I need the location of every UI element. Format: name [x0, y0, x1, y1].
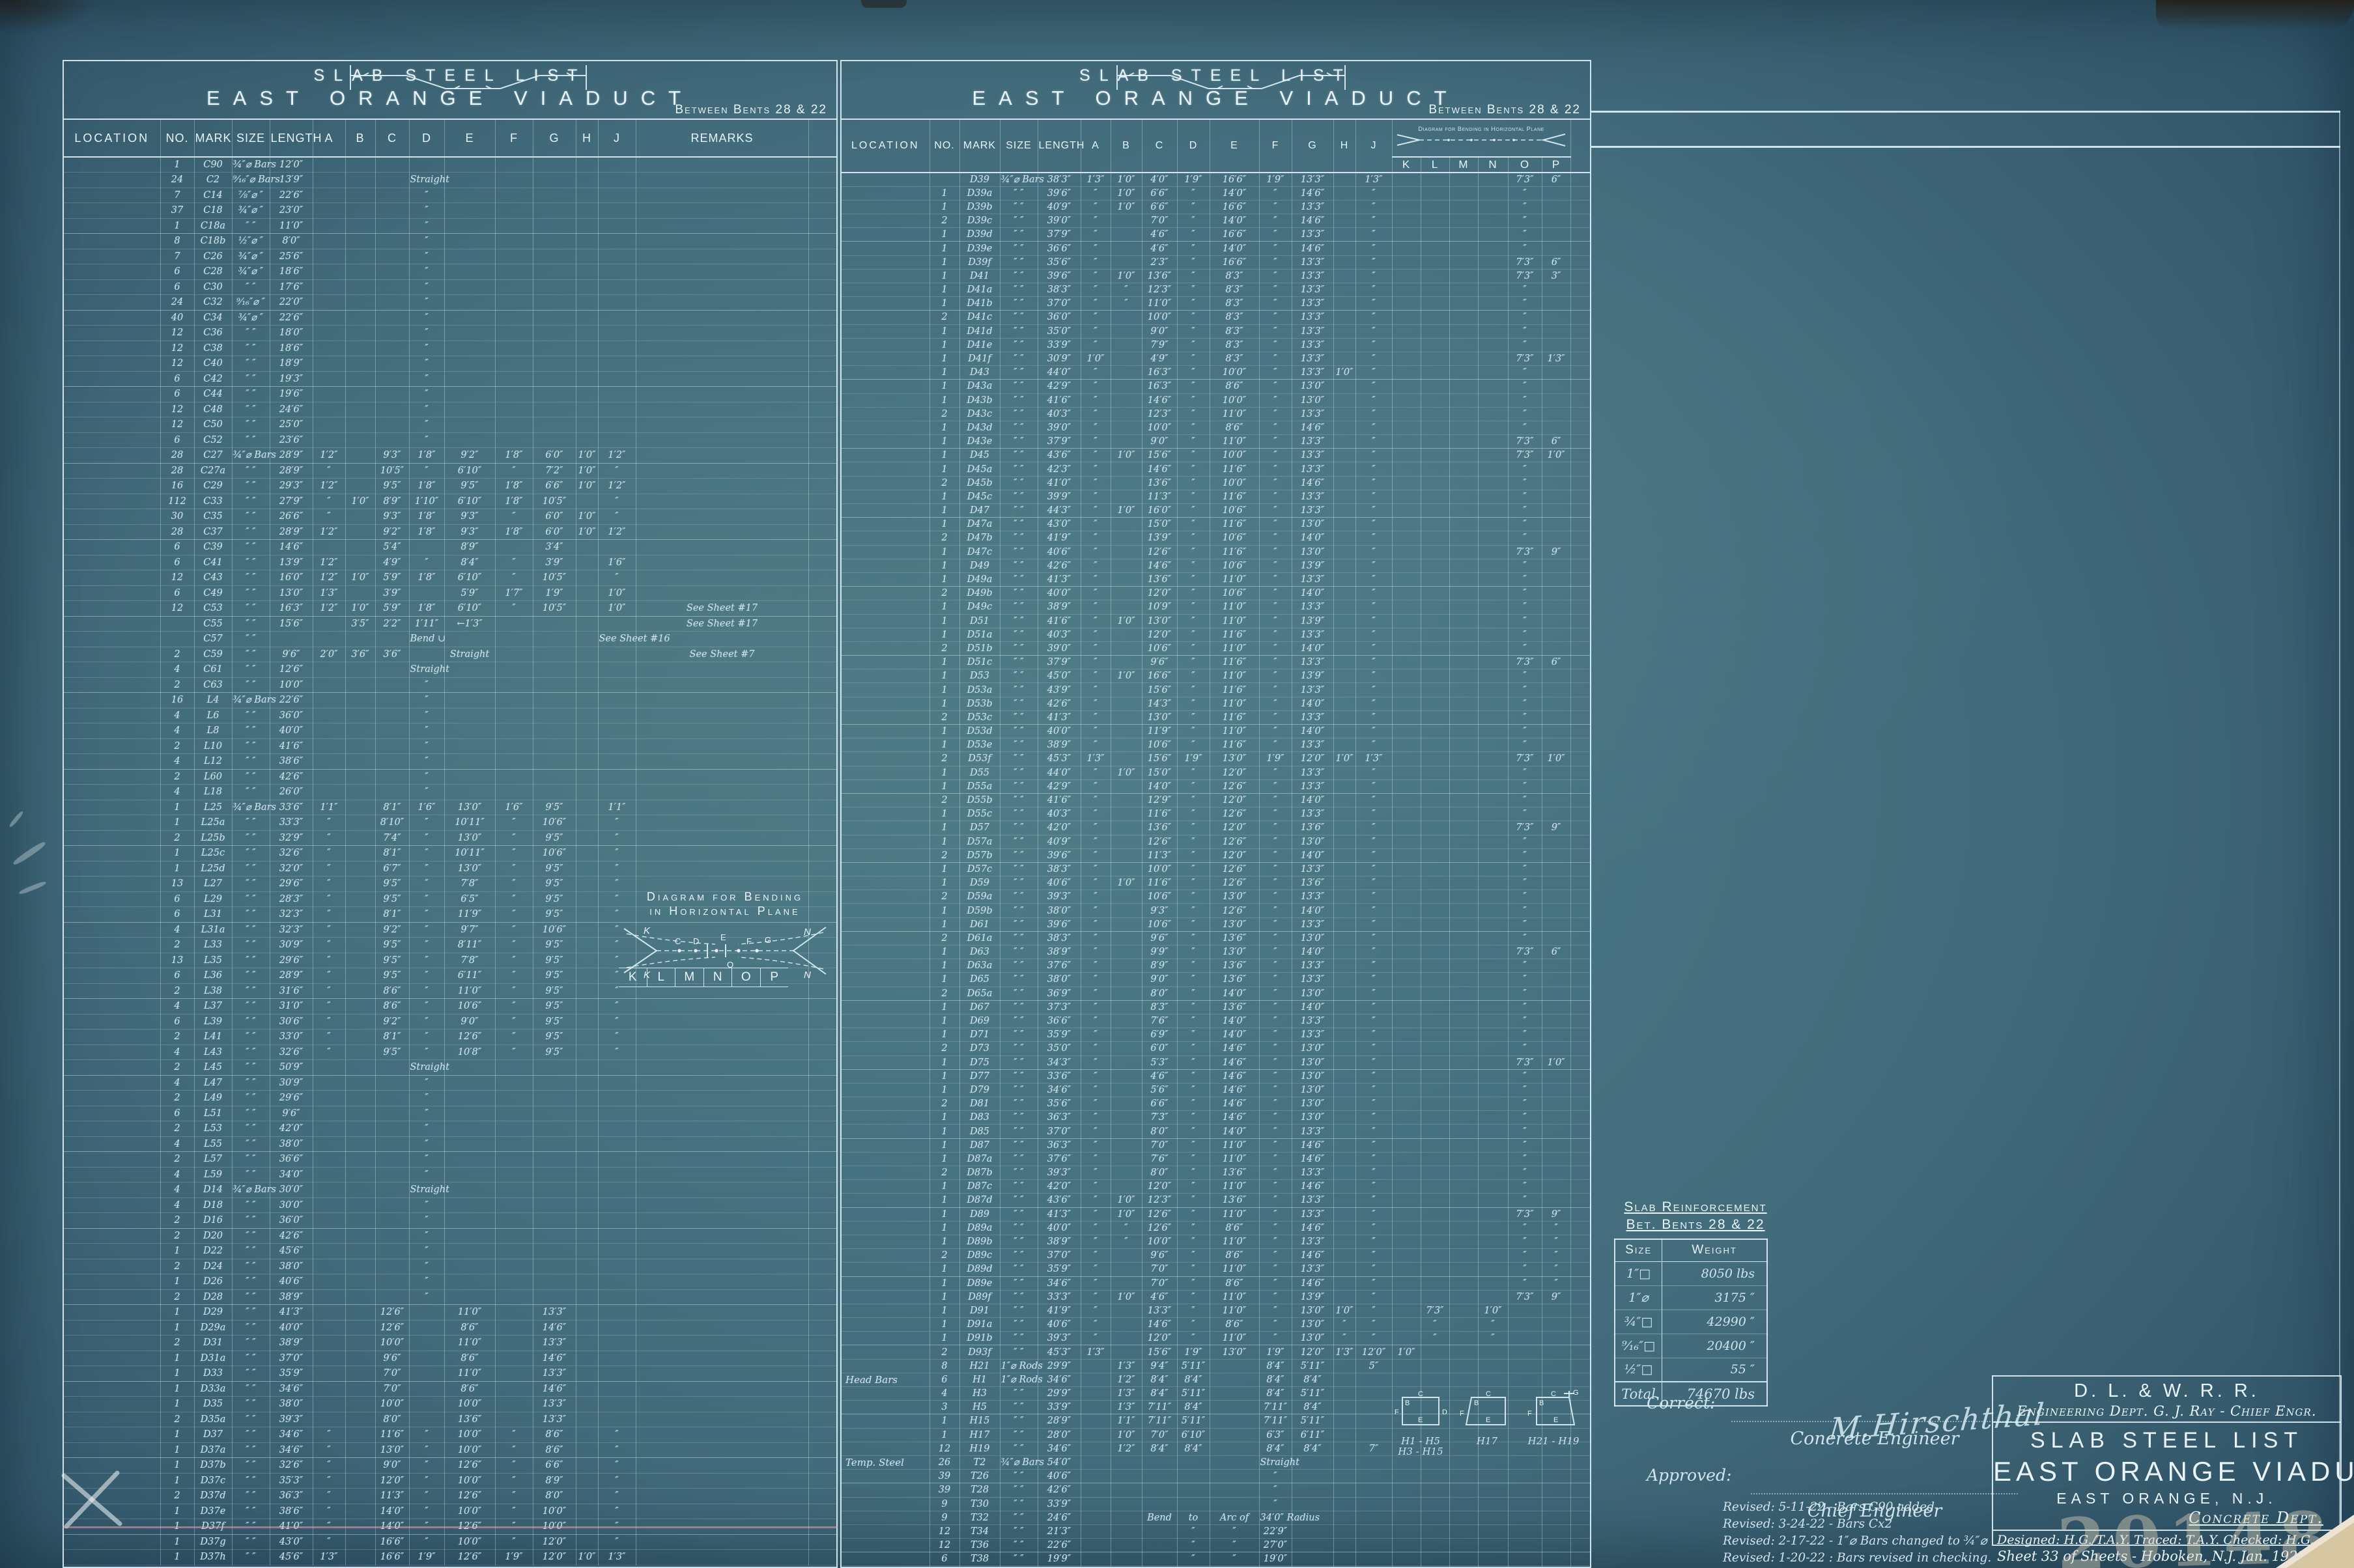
col-k: K: [1392, 157, 1421, 173]
table-row: 12C48″ ″24′6″″: [64, 402, 836, 417]
table-row: 2D45b″ ″41′0″″13′6″″10′0″″14′6″″″: [842, 476, 1590, 490]
col-remarks: REMARKS: [636, 119, 808, 157]
col-location: LOCATION: [842, 119, 929, 173]
blueprint-sheet: SLAB STEEL LIST EAST ORANGE VIADUCT Betw…: [0, 0, 2354, 1568]
col-mark: MARK: [194, 119, 232, 157]
table-row: 39T26″ ″40′6″″: [842, 1470, 1590, 1483]
table-row: 1D22″ ″45′6″″: [64, 1244, 836, 1259]
table-row: 1D29a″ ″40′0″12′6″8′6″14′6″: [64, 1320, 836, 1336]
table-row: 1C18a″ ″11′0″″: [64, 218, 836, 234]
table-row: 12C40″ ″18′9″″: [64, 356, 836, 372]
reinforcement-table: Size Weight 1″□8050 lbs1″⌀3175 ″¾″□42990…: [1614, 1239, 1768, 1407]
svg-text:E: E: [1486, 1416, 1490, 1424]
table-row: 12C43″ ″16′0″1′2″1′0″5′9″1′8″6′10″″10′5″…: [64, 570, 836, 586]
table-row: 12C38″ ″18′6″″: [64, 341, 836, 356]
signature-line: M.Hirschthal: [1731, 1421, 2011, 1422]
svg-text:G: G: [1573, 1390, 1579, 1397]
left-steel-list-panel: SLAB STEEL LIST EAST ORANGE VIADUCT Betw…: [63, 60, 838, 1568]
table-row: Head Bars6H11″⌀ Rods34′6″1′2″8′4″8′4″8′4…: [842, 1373, 1590, 1386]
table-row: C55″ ″15′6″3′5″2′2″1′11″←1′3″See Sheet #…: [64, 616, 836, 632]
svg-text:C: C: [1551, 1390, 1556, 1398]
table-row: 1D79″ ″34′6″″5′6″″14′6″″13′0″″″: [842, 1083, 1590, 1097]
col-j: J: [598, 119, 636, 157]
table-row: 4L6″ ″36′0″″: [64, 708, 836, 723]
shape-h1-h5: C B F E D H1 - H5 H3 - H15: [1392, 1390, 1449, 1457]
sheet-right-border: [2339, 111, 2340, 1560]
top-right-stain: [2156, 0, 2354, 30]
table-row: 4C61″ ″12′6″Straight: [64, 662, 836, 678]
table-header: LOCATION NO. MARK SIZE LENGTH A B C D E …: [842, 119, 1590, 173]
table-row: 2L10″ ″41′6″″: [64, 738, 836, 754]
table-row: 2D43c″ ″40′3″″12′3″″11′0″″13′3″″″: [842, 407, 1590, 421]
col-d: D: [409, 119, 444, 157]
table-row: 24C2⁹⁄₁₆″⌀ Bars13′9″Straight: [64, 173, 836, 188]
table-row: 2D87b″ ″39′3″″8′0″″13′6″″13′3″″″: [842, 1166, 1590, 1180]
table-row: 112C33″ ″27′9″″1′0″8′9″1′10″6′10″1′8″10′…: [64, 494, 836, 509]
table-row: 2C59″ ″9′6″2′0″3′6″3′6″StraightSee Sheet…: [64, 647, 836, 662]
table-row: 1D83″ ″36′3″″7′3″″14′6″″13′0″″″: [842, 1111, 1590, 1125]
steel-list-table-middle: LOCATION NO. MARK SIZE LENGTH A B C D E …: [842, 119, 1591, 1568]
svg-text:E: E: [1418, 1416, 1423, 1424]
table-row: 2L41″ ″33′0″″8′1″″12′6″″9′5″″: [64, 1029, 836, 1045]
table-row: 1D53″ ″45′0″″1′0″16′6″″11′0″″13′9″″″: [842, 669, 1590, 683]
table-row: 2D73″ ″35′0″″6′0″″14′6″″13′0″″″: [842, 1042, 1590, 1056]
table-row: 1D47″ ″44′3″″1′0″16′0″″10′6″″13′3″″″: [842, 504, 1590, 518]
table-row: ½″□55 ″: [1615, 1358, 1767, 1382]
top-left-stain: [0, 0, 98, 34]
table-row: 6C28¾″⌀ ″18′6″″: [64, 264, 836, 280]
table-row: 1C90¾″⌀ Bars12′0″: [64, 157, 836, 173]
table-header: LOCATION NO. MARK SIZE LENGTH A B C D E …: [64, 119, 836, 157]
table-row: 2D53c″ ″41′3″″13′0″″11′6″″13′3″″″: [842, 710, 1590, 724]
table-row: 1D75″ ″34′3″″5′3″″14′6″″13′0″″7′3″1′0″: [842, 1056, 1590, 1069]
table-row: 1L25d″ ″32′0″″6′7″″13′0″″9′5″″: [64, 861, 836, 876]
table-row: 40C34¾″⌀ ″22′6″″: [64, 310, 836, 326]
table-row: 1D37b″ ″32′6″″9′0″″12′6″″6′6″″: [64, 1458, 836, 1474]
svg-text:B: B: [1474, 1399, 1479, 1407]
middle-panel-title: SLAB STEEL LIST EAST ORANGE VIADUCT Betw…: [842, 61, 1590, 119]
table-row: 8C18b½″⌀ ″8′0″″: [64, 234, 836, 249]
table-row: 6C39″ ″14′6″5′4″8′9″3′4″: [64, 540, 836, 555]
table-row: 12T36″ ″22′6″″″27′0″: [842, 1539, 1590, 1552]
table-row: 1D71″ ″35′9″″6′9″″14′0″″13′3″″″: [842, 1028, 1590, 1042]
table-row: 1D39b″ ″40′9″″1′0″6′6″″16′6″″13′3″″″: [842, 200, 1590, 214]
table-row: 4L47″ ″30′9″″: [64, 1075, 836, 1091]
table-row: 9T30″ ″33′9″″: [842, 1497, 1590, 1511]
table-row: 2L53″ ″42′0″″: [64, 1121, 836, 1137]
table-row: 1D87d″ ″43′6″″1′0″12′3″″13′6″″13′3″″″: [842, 1194, 1590, 1207]
table-row: 2D35a″ ″39′3″8′0″13′6″13′3″: [64, 1412, 836, 1427]
table-row: 1D37c″ ″35′3″″12′0″″10′0″″8′9″″: [64, 1473, 836, 1489]
table-row: 1D91″ ″41′9″″13′3″″11′0″″13′0″1′0″″7′3″1…: [842, 1304, 1590, 1317]
col-weight: Weight: [1662, 1239, 1767, 1261]
col-size: Size: [1615, 1239, 1662, 1261]
col-c: C: [375, 119, 409, 157]
table-row: 6C49″ ″13′0″1′3″3′9″5′9″1′7″1′9″1′0″: [64, 585, 836, 601]
svg-text:E: E: [720, 932, 726, 942]
table-row: 1D55″ ″44′0″″1′0″15′0″″12′0″″13′3″″″: [842, 766, 1590, 779]
col-a: A: [313, 119, 345, 157]
col-f: F: [1259, 119, 1292, 173]
table-row: 1D89e″ ″34′6″″7′0″″8′6″″14′6″″″″: [842, 1276, 1590, 1290]
table-row: 6C52″ ″23′6″″: [64, 432, 836, 448]
col-e: E: [1210, 119, 1259, 173]
table-row: 1D43e″ ″37′9″″9′0″″11′0″″13′3″″7′3″6″: [842, 435, 1590, 449]
table-row: 2C63″ ″10′0″″: [64, 677, 836, 693]
table-row: 2D49b″ ″40′0″″12′0″″10′6″″14′0″″″: [842, 587, 1590, 600]
table-row: 1D31a″ ″37′0″9′6″8′6″14′6″: [64, 1351, 836, 1366]
page-title: SLAB STEEL LIST: [64, 61, 836, 85]
table-row: 7C14⅞″⌀ ″22′6″″: [64, 188, 836, 203]
edge-scuff: [12, 841, 46, 867]
table-row: 1D51a″ ″40′3″″12′0″″11′6″″13′3″″″: [842, 628, 1590, 641]
col-spare: [808, 119, 836, 157]
table-row: 1D33″ ″35′9″7′0″11′0″13′3″: [64, 1366, 836, 1382]
table-row: 2D59a″ ″39′3″″10′6″″13′0″″13′3″″″: [842, 890, 1590, 904]
table-row: 12C36″ ″18′0″″: [64, 326, 836, 341]
table-row: 1D47c″ ″40′6″″12′6″″11′6″″13′0″″7′3″9″: [842, 545, 1590, 559]
table-row: ¾″□42990 ″: [1615, 1309, 1767, 1334]
steel-list-table-left: LOCATION NO. MARK SIZE LENGTH A B C D E …: [64, 119, 837, 1565]
table-row: D39¾″⌀ Bars38′3″1′3″1′0″4′0″1′9″16′6″1′9…: [842, 173, 1590, 186]
table-row: 1D49″ ″42′6″″14′6″″10′6″″13′9″″″: [842, 559, 1590, 572]
table-row: 1D41f″ ″30′9″1′0″4′9″″8′3″″13′3″″7′3″1′3…: [842, 352, 1590, 365]
table-row: 1D41b″ ″37′0″″″11′0″″8′3″″13′3″″″: [842, 297, 1590, 311]
table-row: 2D47b″ ″41′9″″13′9″″10′6″″14′0″″″: [842, 531, 1590, 545]
table-row: 4L12″ ″38′6″″: [64, 754, 836, 770]
table-row: 6C42″ ″19′3″″: [64, 371, 836, 387]
approved-signature-row: Approved:: [1647, 1466, 2024, 1500]
col-h: H: [1333, 119, 1355, 173]
table-row: 2D81″ ″35′6″″6′6″″14′6″″13′0″″″: [842, 1097, 1590, 1111]
table-row: 1D51c″ ″37′9″″9′6″″11′6″″13′3″″7′3″6″: [842, 656, 1590, 669]
col-size: SIZE: [1000, 119, 1038, 173]
revision-line: Revised: 1-20-22 : Bars revised in check…: [1723, 1550, 1991, 1567]
svg-text:C: C: [1418, 1390, 1423, 1398]
table-row: 1D53b″ ″42′6″″14′3″″11′0″″14′0″″″: [842, 697, 1590, 710]
table-row: 16C29″ ″29′3″1′2″9′5″1′8″9′5″1′8″6′6″1′0…: [64, 479, 836, 494]
table-row: 2D37d″ ″36′3″″11′3″″12′6″″8′0″″: [64, 1489, 836, 1504]
col-g: G: [1292, 119, 1333, 173]
svg-text:D: D: [693, 936, 699, 946]
table-row: 1D35″ ″38′0″10′0″10′0″13′3″: [64, 1397, 836, 1412]
table-row: 1D39d″ ″37′9″″4′6″″16′6″″13′3″″″: [842, 228, 1590, 242]
table-row: 1D63″ ″38′9″″9′9″″13′0″″14′0″″7′3″6″: [842, 945, 1590, 959]
svg-text:F: F: [1527, 1410, 1532, 1418]
col-j: J: [1355, 119, 1392, 173]
table-row: 4D14¾″⌀ Bars30′0″Straight: [64, 1183, 836, 1198]
table-row: 1D59b″ ″38′0″″9′3″″12′6″″14′0″″″: [842, 904, 1590, 917]
col-length: LENGTH: [270, 119, 313, 157]
table-row: 2D39c″ ″39′0″″7′0″″14′0″″14′6″″″: [842, 214, 1590, 228]
svg-text:F: F: [1395, 1408, 1399, 1416]
table-row: 1D49a″ ″41′3″″13′6″″11′0″″13′3″″″: [842, 572, 1590, 586]
table-row: 1D47a″ ″43′0″″15′0″″11′6″″13′0″″″: [842, 518, 1590, 531]
col-mark: MARK: [959, 119, 1000, 173]
table-row: 9T32″ ″24′6″BendtoArc of34′0″ Radius: [842, 1511, 1590, 1524]
table-row: 1D53a″ ″43′9″″15′6″″11′6″″13′3″″″: [842, 683, 1590, 697]
table-row: 1D89a″ ″40′0″″″12′6″″8′6″″14′6″″″″: [842, 1221, 1590, 1235]
table-row: 1D57″ ″42′0″″13′6″″12′0″″13′6″″7′3″9″: [842, 821, 1590, 835]
page-title: SLAB STEEL LIST: [842, 61, 1590, 85]
svg-text:C: C: [1486, 1390, 1491, 1398]
table-row: 6L39″ ″30′6″″9′2″″9′0″″9′5″″: [64, 1014, 836, 1029]
table-row: 2D31″ ″38′9″10′0″11′0″13′3″: [64, 1336, 836, 1351]
table-row: 1D55a″ ″42′9″″14′0″″12′6″″13′3″″″: [842, 779, 1590, 793]
slab-reinforcement-summary: Slab Reinforcement Bet. Bents 28 & 22 Si…: [1614, 1198, 1777, 1407]
table-row: 1D29″ ″41′3″12′6″11′0″13′3″: [64, 1305, 836, 1321]
svg-text:N: N: [804, 970, 811, 981]
svg-text:F: F: [746, 936, 752, 946]
col-o: O: [1508, 157, 1542, 173]
table-row: 1D57a″ ″40′9″″12′6″″12′6″″13′0″″″: [842, 835, 1590, 848]
table-row: ⁹⁄₁₆″□20400 ″: [1615, 1334, 1767, 1358]
table-row: 2D41c″ ″36′0″″10′0″″8′3″″13′3″″″: [842, 311, 1590, 324]
svg-text:C: C: [675, 936, 681, 946]
engineering-dept-line: Engineering Dept. G. J. Ray - Chief Engr…: [1993, 1402, 2340, 1423]
mini-bending-sketch: [1393, 133, 1569, 147]
table-row: 2L25b″ ″32′9″″7′4″″13′0″″9′5″″: [64, 830, 836, 846]
table-row: 37C18¾″⌀ ″23′0″″: [64, 203, 836, 219]
table-row: 1D55c″ ″40′3″″11′6″″12′6″″13′3″″″: [842, 807, 1590, 821]
table-row: 1D43b″ ″41′6″″14′6″″10′0″″13′0″″″: [842, 393, 1590, 407]
table-row: 1D43d″ ″39′0″″10′0″″8′6″″14′6″″″: [842, 421, 1590, 434]
table-row: 1D39f″ ″35′6″″2′3″″16′6″″13′3″″7′3″6″: [842, 255, 1590, 269]
table-row: 1D69″ ″36′6″″7′6″″14′0″″13′3″″″: [842, 1014, 1590, 1028]
table-row: 2D89c″ ″37′0″″9′6″″8′6″″14′6″″″″: [842, 1249, 1590, 1263]
table-row: 1D87a″ ″37′6″″7′6″″11′0″″14′6″″″: [842, 1152, 1590, 1166]
table-row: 2D20″ ″42′6″″: [64, 1228, 836, 1244]
revision-line: Revised: 5-11-22 - Bars C90 added: [1723, 1499, 1991, 1516]
col-c: C: [1142, 119, 1177, 173]
col-a: A: [1081, 119, 1111, 173]
table-row: 1L25¾″⌀ Bars33′6″1′1″8′1″1′6″13′0″1′6″9′…: [64, 800, 836, 815]
table-row: 1D51″ ″41′6″″1′0″13′0″″11′0″″13′9″″″: [842, 614, 1590, 628]
col-n: N: [1478, 157, 1508, 173]
table-row: Temp. Steel26T2¾″⌀ Bars54′0″Straight: [842, 1455, 1590, 1469]
table-row: 1″⌀3175 ″: [1615, 1285, 1767, 1309]
table-row: 8H211″⌀ Rods29′9″1′3″9′4″5′11″8′4″5′11″5…: [842, 1359, 1590, 1373]
table-row: 16L4¾″⌀ Bars22′6″″: [64, 693, 836, 708]
top-rule-1: [1591, 111, 2340, 113]
shape-h21-h19: C B F E G H21 - H19: [1525, 1390, 1582, 1457]
table-row: 4L55″ ″38′0″″: [64, 1136, 836, 1152]
table-row: 1D39a″ ″39′6″″1′0″6′6″″14′0″″14′6″″″: [842, 186, 1590, 200]
head-bar-shape-diagrams: C B F E D H1 - H5 H3 - H15 C B F E H17: [1392, 1390, 1587, 1457]
revision-line: Revised: 3-24-22 - Bars Cx2: [1723, 1516, 1991, 1533]
table-row: 1D41″ ″39′6″″1′0″13′6″″8′3″″13′3″″7′3″3″: [842, 269, 1590, 283]
table-row: 1D89b″ ″38′9″″″10′0″″11′0″″13′3″″″″: [842, 1235, 1590, 1248]
col-d: D: [1177, 119, 1210, 173]
table-row: 1D53d″ ″40′0″″11′9″″11′0″″14′0″″″: [842, 725, 1590, 738]
table-row: 2D16″ ″36′0″″: [64, 1213, 836, 1229]
table-row: 1D39e″ ″36′6″″4′6″″14′0″″14′6″″″: [842, 242, 1590, 255]
col-f: F: [495, 119, 533, 157]
table-row: 1D37e″ ″38′6″″14′0″″10′0″″10′0″″: [64, 1504, 836, 1519]
table-row: 1D91b″ ″39′3″″12′0″″11′0″″13′0″″″″″: [842, 1332, 1590, 1345]
table-row: 6L51″ ″9′6″″: [64, 1106, 836, 1121]
table-row: 2L45″ ″50′9″Straight: [64, 1060, 836, 1076]
table-row: 6C41″ ″13′9″1′2″4′9″″8′4″″3′9″1′6″: [64, 555, 836, 570]
svg-text:F: F: [1460, 1410, 1464, 1418]
railroad-name: D. L. & W. R. R.: [1993, 1377, 2340, 1402]
table-row: 1D49c″ ″38′9″″10′9″″11′0″″13′3″″″: [842, 600, 1590, 614]
table-row: 1D87″ ″36′3″″7′0″″11′0″″14′6″″″: [842, 1138, 1590, 1152]
table-row: 2D61a″ ″38′3″″9′6″″13′6″″13′0″″″: [842, 931, 1590, 945]
edge-scuff: [18, 880, 46, 895]
revision-line: Revised: 2-17-22 - 1″⌀ Bars changed to ¾…: [1723, 1533, 1991, 1550]
table-row: 2D65a″ ″36′9″″8′0″″14′0″″13′0″″″: [842, 987, 1590, 1000]
col-spare: [1570, 119, 1590, 173]
top-rule-2: [1591, 146, 2340, 148]
table-row: 1D57c″ ″38′3″″10′0″″12′6″″13′3″″″: [842, 862, 1590, 876]
shape-h17: C B F E H17: [1458, 1390, 1516, 1457]
table-row: 1D43a″ ″42′9″″16′3″″8′6″″13′0″″″: [842, 380, 1590, 393]
table-row: 7C26¾″⌀ ″25′6″″: [64, 249, 836, 264]
table-row: 2D55b″ ″41′6″″12′9″″12′0″″14′0″″″: [842, 793, 1590, 807]
table-row: 1D91a″ ″40′6″″14′6″″8′6″″13′0″″″″″: [842, 1318, 1590, 1332]
table-row: 1D26″ ″40′6″″: [64, 1274, 836, 1290]
approved-label: Approved:: [1647, 1466, 1731, 1485]
table-row: 4L43″ ″32′6″″9′5″″10′8″″9′5″″: [64, 1044, 836, 1060]
table-row: 1L25c″ ″32′6″″8′1″″10′11″″10′6″″: [64, 846, 836, 861]
table-row: 1D53e″ ″38′9″″10′6″″11′6″″13′3″″″: [842, 738, 1590, 752]
table-row: 2D53f″ ″45′3″1′3″15′6″1′9″13′0″1′9″12′0″…: [842, 752, 1590, 766]
table-row: 12C50″ ″25′0″″: [64, 417, 836, 433]
table-row: 12T34″ ″21′3″″″22′9″: [842, 1524, 1590, 1538]
table-row: 6C30″ ″17′6″″: [64, 279, 836, 295]
table-row: 1D77″ ″33′6″″4′6″″14′6″″13′0″″″: [842, 1069, 1590, 1083]
table-row: 2L49″ ″29′6″″: [64, 1091, 836, 1106]
table-row: 24C32⁹⁄₁₆″⌀ ″22′0″″: [64, 295, 836, 311]
table-row: 1D63a″ ″37′6″″8′9″″13′6″″13′3″″″: [842, 959, 1590, 973]
col-b: B: [345, 119, 375, 157]
svg-text:D: D: [1442, 1408, 1447, 1416]
table-row: 4L59″ ″34′0″″: [64, 1167, 836, 1183]
table-row: C57″ ″Bend ∪See Sheet #16: [64, 632, 836, 647]
table-row: 28C37″ ″28′9″1′2″9′2″1′8″9′3″1′8″6′0″1′0…: [64, 524, 836, 540]
project-name: EAST ORANGE VIADUCT: [1993, 1456, 2340, 1487]
table-row: 2D57b″ ″39′6″″11′3″″12′0″″14′0″″″: [842, 848, 1590, 862]
table-row: 6T38″ ″19′9″″″19′0″: [842, 1552, 1590, 1566]
col-g: G: [533, 119, 576, 157]
table-row: 6C44″ ″19′6″″: [64, 387, 836, 402]
table-row: 1D45″ ″43′6″″1′0″15′6″″10′0″″13′3″″7′3″1…: [842, 449, 1590, 462]
drawing-number-stamp: 20148: [2056, 1496, 2336, 1568]
table-row: 12C53″ ″16′3″1′2″1′0″5′9″1′8″6′10″″10′5″…: [64, 601, 836, 617]
table-row: 4L37″ ″31′0″″8′6″″10′6″″9′5″″: [64, 999, 836, 1015]
table-row: 1L25a″ ″33′3″″8′10″″10′11″″10′6″″: [64, 815, 836, 831]
table-row: 1D85″ ″37′0″″8′0″″14′0″″13′3″″″: [842, 1125, 1590, 1138]
table-row: 4L18″ ″26′0″″: [64, 785, 836, 800]
table-row: 1D45c″ ″39′9″″11′3″″11′6″″13′3″″″: [842, 490, 1590, 503]
left-panel-title: SLAB STEEL LIST EAST ORANGE VIADUCT Betw…: [64, 61, 836, 119]
correct-signature-row: Correct: M.Hirschthal: [1647, 1393, 2024, 1427]
svg-text:N: N: [804, 927, 811, 938]
table-row: 1D65″ ″38′0″″9′0″″13′6″″13′3″″″: [842, 973, 1590, 987]
table-row: 1D67″ ″37′3″″8′3″″13′6″″14′0″″″: [842, 1000, 1590, 1014]
table-row: 1D41d″ ″35′0″″9′0″″8′3″″13′3″″″: [842, 324, 1590, 338]
table-row: 2L57″ ″36′6″″: [64, 1152, 836, 1168]
table-row: 1D41a″ ″38′3″″″12′3″″8′3″″13′3″″″: [842, 283, 1590, 297]
table-row: 1D45a″ ″42′3″″14′6″″11′6″″13′3″″″: [842, 462, 1590, 476]
table-row: 1″□8050 lbs: [1615, 1261, 1767, 1285]
col-b: B: [1111, 119, 1142, 173]
bents-range-label: Between Bents 28 & 22: [1428, 103, 1581, 117]
revision-notes: Revised: 5-11-22 - Bars C90 added Revise…: [1723, 1499, 1991, 1567]
col-e: E: [444, 119, 495, 157]
top-middle-stain: [861, 0, 907, 8]
col-m: M: [1449, 157, 1478, 173]
table-row: 4D18″ ″30′0″″: [64, 1197, 836, 1213]
col-l: L: [1421, 157, 1449, 173]
table-row: 4L8″ ″40′0″″: [64, 723, 836, 739]
table-row: 1D37h″ ″45′6″1′3″16′6″1′9″12′6″1′9″12′0″…: [64, 1550, 836, 1565]
table-row: 1D89d″ ″35′9″″7′0″″11′0″″13′3″″″″: [842, 1263, 1590, 1276]
mini-bending-diagram: Diagram for Bending in Horizontal Plane: [1392, 119, 1570, 157]
col-h: H: [576, 119, 598, 157]
table-row: 1D41e″ ″33′9″″7′9″″8′3″″13′3″″″: [842, 338, 1590, 352]
table-row: 1D33a″ ″34′6″7′0″8′6″14′6″: [64, 1381, 836, 1397]
table-row: 1D61″ ″39′6″″10′6″″13′0″″13′3″″″: [842, 917, 1590, 931]
col-length: LENGTH: [1038, 119, 1081, 173]
middle-steel-list-panel: SLAB STEEL LIST EAST ORANGE VIADUCT Betw…: [840, 60, 1591, 1568]
table-row: 1D89f″ ″33′3″″1′0″4′6″″11′0″″13′9″″7′3″9…: [842, 1290, 1590, 1304]
table-row: 28C27a″ ″28′9″″10′5″″6′10″″7′2″1′0″″: [64, 463, 836, 479]
pink-pencil-line: [63, 1526, 838, 1528]
table-row: 1D59″ ″40′6″″1′0″11′6″″12′6″″13′6″″″: [842, 876, 1590, 890]
table-row: 1D89″ ″41′3″″1′0″12′6″″11′0″″13′3″″7′3″9…: [842, 1207, 1590, 1221]
table-row: 1D87c″ ″42′0″″12′0″″11′0″″14′6″″″: [842, 1180, 1590, 1194]
table-row: 28C27¾″⌀ Bars28′9″1′2″9′3″1′8″9′2″1′8″6′…: [64, 448, 836, 464]
signature-line: [1751, 1493, 2018, 1494]
table-row: 2D24″ ″38′0″″: [64, 1259, 836, 1274]
table-row: 1D43″ ″44′0″″16′3″″10′0″″13′3″1′0″″″: [842, 366, 1590, 380]
col-size: SIZE: [232, 119, 270, 157]
svg-text:B: B: [1405, 1399, 1410, 1407]
svg-text:E: E: [1553, 1416, 1558, 1424]
col-no: NO.: [160, 119, 194, 157]
bents-range-label: Between Bents 28 & 22: [675, 103, 827, 117]
table-row: 2D93f″ ″45′3″1′3″15′6″1′9″13′0″1′9″12′0″…: [842, 1345, 1590, 1359]
drawing-title: SLAB STEEL LIST: [1993, 1428, 2340, 1453]
table-row: 30C35″ ″26′6″″9′3″1′8″9′3″″6′0″1′0″″: [64, 509, 836, 525]
table-row: 2D51b″ ″39′0″″10′6″″11′0″″14′0″″″: [842, 641, 1590, 655]
table-row: 1D37″ ″34′6″″11′6″″10′0″″8′6″″: [64, 1427, 836, 1443]
edge-scuff: [8, 811, 24, 828]
col-no: NO.: [929, 119, 959, 173]
table-row: 1D37g″ ″43′0″″16′6″″10′0″″12′0″″: [64, 1534, 836, 1550]
svg-text:B: B: [1539, 1399, 1544, 1407]
col-p: P: [1542, 157, 1570, 173]
col-location: LOCATION: [64, 119, 160, 157]
table-row: 2D28″ ″38′9″″: [64, 1289, 836, 1305]
table-row: 39T28″ ″42′6″″: [842, 1483, 1590, 1497]
klmnop-column-header: K L M N O P: [619, 968, 788, 987]
table-row: 2L60″ ″42′6″″: [64, 769, 836, 785]
table-row: 1D37a″ ″34′6″″13′0″″10′0″″8′6″″: [64, 1442, 836, 1458]
svg-text:K: K: [644, 925, 651, 936]
svg-text:G: G: [765, 935, 771, 945]
correct-label: Correct:: [1647, 1393, 1715, 1412]
